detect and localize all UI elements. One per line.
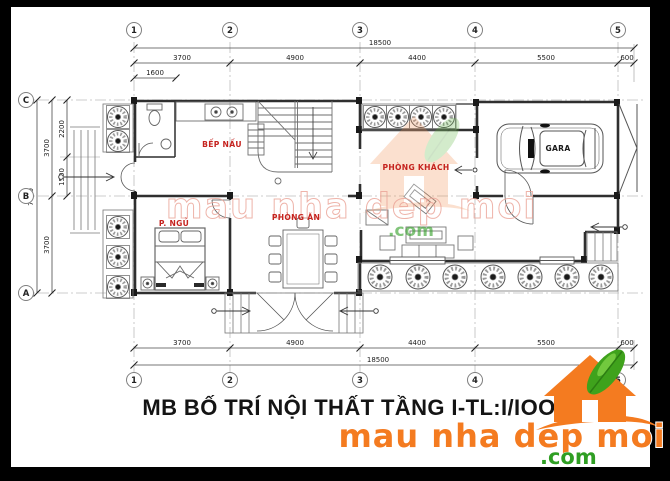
planter-tree (589, 265, 613, 289)
planter-tree (518, 265, 542, 289)
grid-col-1-top: 1 (131, 26, 137, 36)
grid-col-2-top: 2 (227, 26, 233, 36)
room-label-living: PHÒNG KHÁCH (383, 163, 450, 172)
room-label-kitchen: BẾP NẤU (202, 139, 242, 149)
dim-left-sub-1: 2200 (58, 120, 66, 138)
dim-left-seg-1: 3700 (43, 139, 51, 157)
dim-seg-bottom-1: 3700 (173, 339, 191, 347)
grid-col-1-bottom: 1 (131, 376, 137, 386)
grid-col-5-top: 5 (615, 26, 621, 36)
dim-seg-bottom-2: 4900 (286, 339, 304, 347)
grid-col-4-bottom: 4 (472, 376, 478, 386)
dim-overall-bottom: 18500 (367, 356, 389, 364)
dim-seg-top-5: 600 (620, 54, 633, 62)
watermark-tld-text: .com (388, 221, 434, 241)
planter-tree (481, 265, 505, 289)
grid-col-3-bottom: 3 (357, 376, 363, 386)
dim-sub-top: 1600 (146, 69, 164, 77)
dim-left-seg-2: 3700 (43, 236, 51, 254)
watermark-brand-text: mau nha dep moi (166, 187, 537, 227)
planter-tree (555, 265, 579, 289)
dim-seg-top-1: 3700 (173, 54, 191, 62)
grid-row-a: A (23, 289, 30, 299)
room-label-bedroom: P. NGỦ (159, 218, 189, 228)
dim-seg-bottom-5: 600 (620, 339, 633, 347)
logo-tld-text: .com (540, 445, 597, 469)
logo-brand-text: mau nha dep moi (338, 417, 665, 455)
floor-plan-page: 18500 3700 4900 4400 5500 600 1600 3700 … (0, 0, 670, 481)
room-label-dining: PHÒNG ĂN (272, 213, 320, 222)
grid-col-4-top: 4 (472, 26, 478, 36)
dim-seg-top-3: 4400 (408, 54, 426, 62)
dim-seg-top-4: 5500 (537, 54, 555, 62)
dim-seg-top-2: 4900 (286, 54, 304, 62)
planter-tree (406, 265, 430, 289)
dim-seg-bottom-3: 4400 (408, 339, 426, 347)
dim-overall-top: 18500 (369, 39, 391, 47)
grid-row-b: B (23, 192, 29, 202)
grid-col-3-top: 3 (357, 26, 363, 36)
planter-tree (443, 265, 467, 289)
planter-tree (368, 265, 392, 289)
dim-seg-bottom-4: 5500 (537, 339, 555, 347)
room-label-garage: GARA (545, 144, 570, 153)
grid-row-c: C (23, 96, 29, 106)
grid-col-2-bottom: 2 (227, 376, 233, 386)
